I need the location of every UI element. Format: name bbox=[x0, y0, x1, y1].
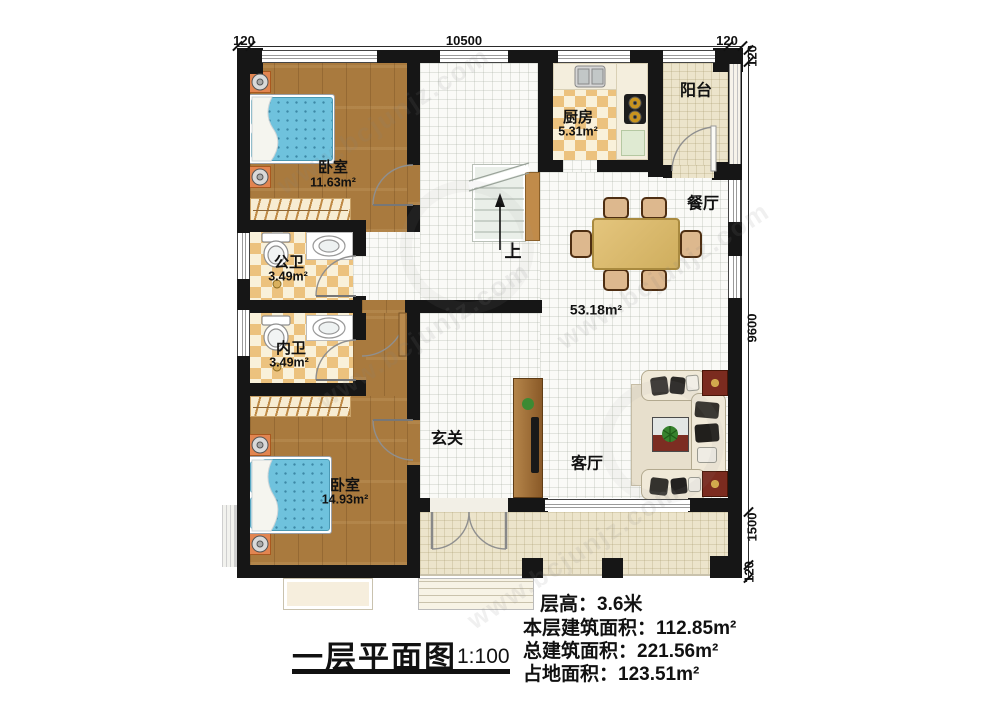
dining-table bbox=[592, 218, 680, 270]
balcony-railing-east bbox=[729, 64, 741, 164]
dining-chair bbox=[603, 269, 629, 291]
watermark-logo-circle bbox=[600, 380, 724, 504]
title-underline bbox=[292, 669, 510, 674]
wall-balcony-south bbox=[663, 165, 672, 178]
mattress bbox=[264, 97, 333, 161]
dim-top-right: 120 bbox=[709, 33, 745, 48]
kitchen-area: 5.31m² bbox=[558, 125, 598, 138]
window-kitchen-north bbox=[558, 50, 630, 63]
door-gap-private-bath bbox=[353, 340, 366, 380]
pillow bbox=[250, 461, 261, 493]
entry-label: 玄关 bbox=[431, 432, 463, 449]
wall-kitchen-south bbox=[597, 160, 648, 172]
watermark-logo-circle bbox=[400, 180, 534, 314]
wardrobe-rail bbox=[253, 210, 348, 211]
stove bbox=[624, 94, 646, 124]
open-area-label: 53.18m² bbox=[570, 303, 622, 318]
wardrobe-rail bbox=[253, 407, 348, 408]
window-public-bath bbox=[237, 233, 250, 279]
wall-bath-divider bbox=[237, 300, 362, 313]
wall-balcony-south bbox=[714, 165, 728, 178]
door-gap-bedroom2 bbox=[407, 420, 420, 465]
dim-line-top bbox=[237, 46, 743, 47]
door-gap-public-bath bbox=[353, 256, 366, 296]
corner-column-nw bbox=[237, 48, 263, 74]
corner-column-se bbox=[710, 556, 742, 578]
wall-kitchen-west bbox=[538, 50, 553, 172]
window-bedroom1-north bbox=[262, 50, 377, 63]
wardrobe bbox=[250, 396, 351, 417]
pillow bbox=[251, 98, 263, 126]
opening-kitchen bbox=[563, 160, 597, 172]
door-gap-front bbox=[430, 498, 508, 512]
dim-right-bottom: 120 bbox=[742, 561, 757, 583]
window-balcony-north bbox=[663, 50, 715, 63]
dim-right-top: 120 bbox=[745, 45, 760, 67]
bath-sink-counter bbox=[306, 315, 353, 341]
nightstand bbox=[249, 71, 271, 93]
pillow bbox=[251, 131, 263, 159]
nightstand bbox=[249, 533, 271, 555]
pillow bbox=[250, 497, 261, 529]
private-bath-area: 3.49m² bbox=[269, 356, 309, 369]
dining-label: 餐厅 bbox=[687, 197, 719, 214]
wall-corridor-east bbox=[407, 313, 420, 420]
stat-land-area: 占地面积：123.51m² bbox=[523, 659, 699, 686]
bedroom1-label: 卧室 bbox=[318, 160, 348, 176]
dining-chair bbox=[603, 197, 629, 219]
bath-sink-counter bbox=[306, 232, 353, 260]
window-dining-east bbox=[728, 256, 742, 298]
mattress bbox=[262, 459, 330, 531]
nightstand bbox=[249, 434, 271, 456]
door-gap-balcony bbox=[672, 165, 714, 178]
wall-south-living bbox=[688, 498, 728, 512]
plan-scale: 1:100 bbox=[457, 645, 510, 669]
entrance-steps bbox=[418, 578, 534, 610]
wall-bedroom1-east bbox=[407, 50, 420, 165]
wall-kitchen-south bbox=[538, 160, 563, 172]
porch-floor bbox=[420, 512, 742, 576]
wall-bath-north bbox=[237, 220, 366, 232]
floorplan-canvas: 卧室 11.63m² 厨房 5.31m² 阳台 餐厅 公卫 3.49m² 内卫 … bbox=[0, 0, 1000, 706]
balcony-floor bbox=[663, 63, 728, 177]
porch-edge-line bbox=[420, 574, 742, 576]
stat-floor-height: 层高：3.6米 bbox=[540, 589, 642, 616]
cutting-board bbox=[621, 130, 645, 156]
porch-column bbox=[602, 558, 623, 578]
dining-chair bbox=[680, 230, 702, 258]
window-dining-east bbox=[728, 180, 742, 222]
wardrobe bbox=[250, 198, 351, 221]
dim-top-left: 120 bbox=[226, 33, 262, 48]
wall-bath-south bbox=[237, 383, 366, 396]
bedroom2-window-sill bbox=[222, 505, 237, 567]
wall-south-living bbox=[508, 498, 548, 512]
door-gap-bedroom1 bbox=[407, 165, 420, 205]
window-stairhall-north bbox=[440, 50, 508, 63]
wall-south-bedroom2 bbox=[237, 565, 420, 578]
entry-pad bbox=[283, 578, 373, 610]
dim-top-width: 10500 bbox=[440, 33, 488, 48]
side-table bbox=[702, 370, 728, 396]
bedroom2-area: 14.93m² bbox=[322, 493, 369, 506]
dim-right-porch: 1500 bbox=[745, 513, 760, 542]
dining-chair bbox=[641, 197, 667, 219]
bedroom1-area: 11.63m² bbox=[310, 176, 356, 189]
wall-bath-east bbox=[353, 220, 366, 256]
door-gap-corridor bbox=[362, 300, 405, 313]
tv bbox=[531, 417, 539, 473]
nightstand bbox=[249, 166, 271, 188]
wall-kitchen-east bbox=[648, 50, 663, 177]
dim-right-main: 9600 bbox=[745, 314, 760, 343]
porch-column bbox=[522, 558, 543, 578]
dining-chair bbox=[641, 269, 667, 291]
dining-chair bbox=[570, 230, 592, 258]
public-bath-area: 3.49m² bbox=[268, 270, 308, 283]
balcony-label: 阳台 bbox=[680, 84, 712, 101]
wall-bath-east bbox=[353, 380, 366, 396]
living-label: 客厅 bbox=[571, 457, 603, 474]
wall-bedroom2-east bbox=[407, 465, 420, 565]
window-private-bath bbox=[237, 310, 250, 356]
